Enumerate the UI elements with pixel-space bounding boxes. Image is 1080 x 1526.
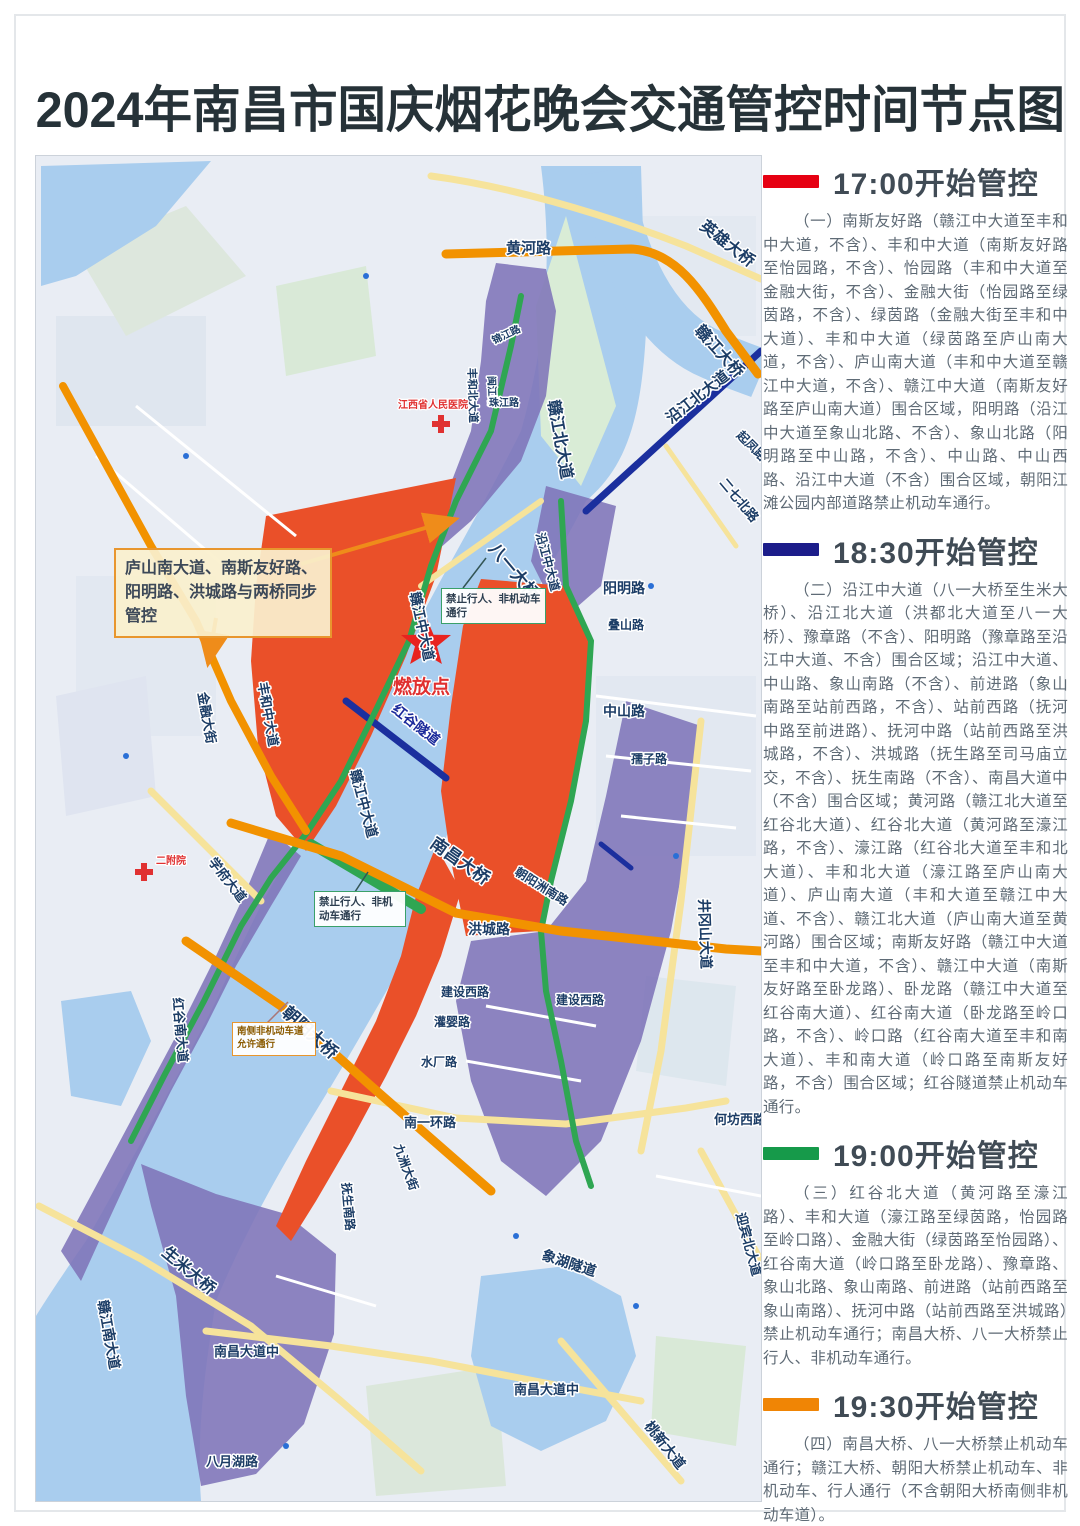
green-legend-bar xyxy=(763,1147,819,1160)
legend-section-1900: 19:00开始管控 （三）红谷北大道（黄河路至濠江路）、丰和大道（濠江路至绿茵路… xyxy=(763,1131,1068,1370)
legend-section-1700: 17:00开始管控 （一）南斯友好路（赣江中大道至丰和中大道，不含）、丰和中大道… xyxy=(763,159,1068,516)
map-label: 叠山路 xyxy=(608,617,645,632)
callout-chaoyang-bridge-note: 南侧非机动车道允许通行 xyxy=(232,1022,316,1056)
legend-body-1830: （二）沿江中大道（八一大桥至生米大桥）、沿江北大道（洪都北大道至八一大桥）、豫章… xyxy=(763,579,1068,1120)
map-label: 水厂路 xyxy=(421,1054,458,1069)
map-label: 何坊西路 xyxy=(714,1112,761,1127)
legend-body-1930: （四）南昌大桥、八一大桥禁止机动车通行；赣江大桥、朝阳大桥禁止机动车、非机动车、… xyxy=(763,1433,1068,1526)
map-label: 二附院 xyxy=(156,854,186,867)
legend-body-1900: （三）红谷北大道（黄河路至濠江路）、丰和大道（濠江路至绿茵路，怡园路至岭口路）、… xyxy=(763,1182,1068,1370)
map-label: 孺子路 xyxy=(631,751,668,766)
traffic-control-map: 黄河路 英雄大桥 赣江大桥 沿江北大道 起凤路 赣江北大道 丰和北大道 锦江路 … xyxy=(35,155,762,1502)
map-label: 灌婴路 xyxy=(433,1014,471,1029)
map-label: 黄河路 xyxy=(506,239,552,257)
map-label: 建设西路 xyxy=(440,984,490,999)
legend-section-1930: 19:30开始管控 （四）南昌大桥、八一大桥禁止机动车通行；赣江大桥、朝阳大桥禁… xyxy=(763,1382,1068,1526)
map-label: 南昌大道中 xyxy=(514,1382,579,1397)
map-label: 井冈山大道 xyxy=(696,899,714,970)
map-label: 珠江路 xyxy=(489,396,520,409)
map-canvas: 黄河路 英雄大桥 赣江大桥 沿江北大道 起凤路 赣江北大道 丰和北大道 锦江路 … xyxy=(36,156,761,1501)
legend-body-1700: （一）南斯友好路（赣江中大道至丰和中大道，不含）、丰和中大道（南斯友好路至怡园路… xyxy=(763,210,1068,516)
map-label: 南一环路 xyxy=(404,1115,457,1130)
legend-time-1900: 19:00开始管控 xyxy=(833,1131,1039,1175)
map-label: 洪城路 xyxy=(468,921,511,937)
poster: 2024年南昌市国庆烟花晚会交通管控时间节点图 xyxy=(0,0,1080,1526)
legend-time-1700: 17:00开始管控 xyxy=(833,159,1039,203)
legend-section-1830: 18:30开始管控 （二）沿江中大道（八一大桥至生米大桥）、沿江北大道（洪都北大… xyxy=(763,528,1068,1120)
launch-point-label: 燃放点 xyxy=(393,675,450,698)
orange-legend-bar xyxy=(763,1398,819,1411)
map-label: 阳明路 xyxy=(603,580,646,596)
legend-time-1930: 19:30开始管控 xyxy=(833,1382,1039,1426)
map-label: 八月湖路 xyxy=(205,1454,259,1469)
callout-sync-control-note: 庐山南大道、南斯友好路、阳明路、洪城路与两桥同步管控 xyxy=(114,548,332,638)
legend-panel: 17:00开始管控 （一）南斯友好路（赣江中大道至丰和中大道，不含）、丰和中大道… xyxy=(763,157,1068,1526)
map-label: 南昌大道中 xyxy=(214,1344,279,1359)
callout-bayi-bridge-ban: 禁止行人、非机动车通行 xyxy=(441,588,546,624)
page-title: 2024年南昌市国庆烟花晚会交通管控时间节点图 xyxy=(36,70,1045,142)
legend-time-1830: 18:30开始管控 xyxy=(833,528,1039,572)
blue-legend-bar xyxy=(763,543,819,556)
map-label: 中山路 xyxy=(603,703,646,719)
callout-nanchang-bridge-ban: 禁止行人、非机动车通行 xyxy=(314,891,406,927)
map-label: 建设西路 xyxy=(555,992,605,1007)
red-legend-bar xyxy=(763,175,819,188)
map-label: 江西省人民医院 xyxy=(398,398,468,411)
